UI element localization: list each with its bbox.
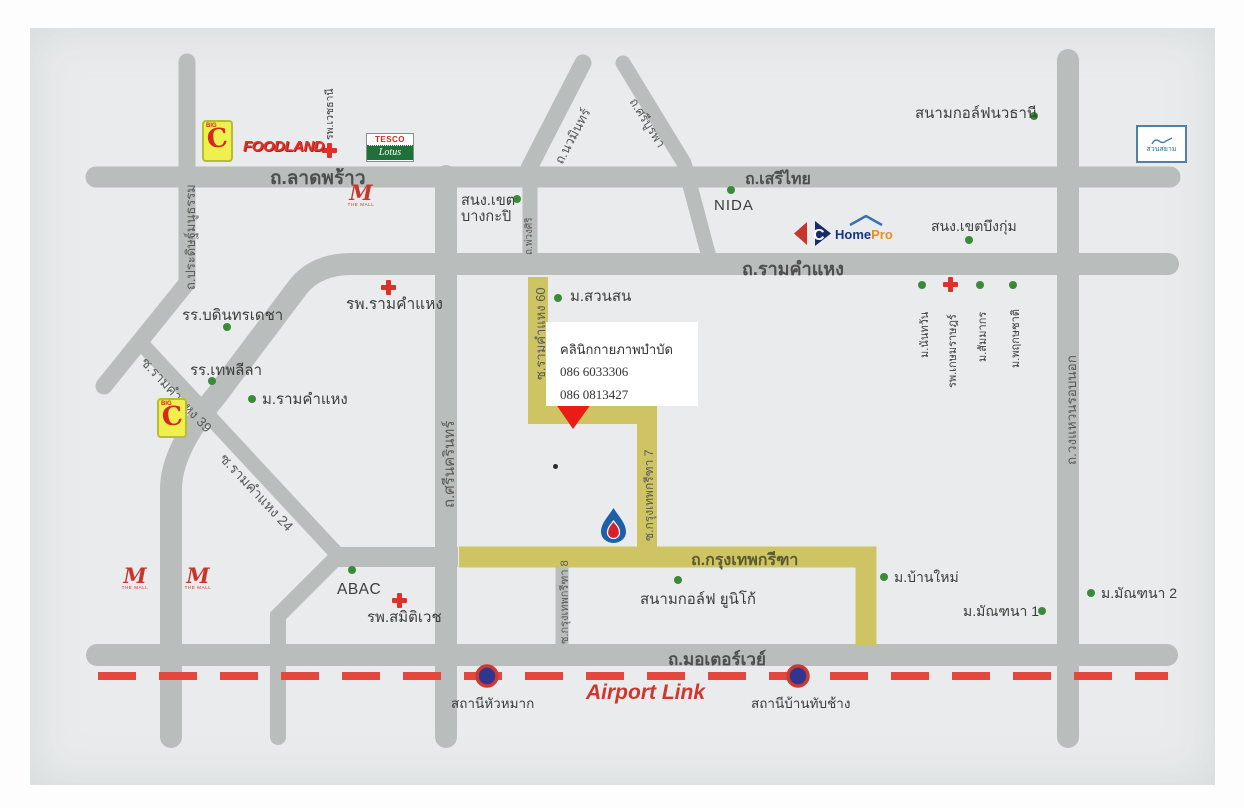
poi-label-ramkhamhaeng-hospital: รพ.รามคำแหง	[346, 296, 443, 313]
poi-label-unico-golf: สนามกอล์ฟ ยูนิโก้	[640, 592, 756, 609]
clinic-name: คลินิกกายภาพบำบัด	[560, 339, 673, 360]
road-label-srinakarin: ถ.ศรีนครินทร์	[437, 421, 461, 508]
ptt-flame-icon	[600, 507, 627, 544]
poi-label-ban-mai: ม.บ้านใหม่	[894, 570, 959, 585]
big-c-logo-letter: C	[160, 401, 184, 433]
suan-siam-logo: สวนสยาม	[1136, 125, 1187, 163]
station-ban-thap-chang-icon	[788, 666, 808, 686]
homepro-logo: HomePro	[835, 215, 905, 244]
road-label-soi-krungthep-kreetha-8: ซ.กรุงเทพกรีฑา 8	[555, 560, 573, 644]
tesco-lotus-logo: TESCO Lotus	[366, 133, 414, 162]
road-label-outer-ring: ถ.วงแหวนรอบนอก	[1060, 355, 1082, 465]
poi-label-nida: NIDA	[714, 198, 754, 215]
poi-dot-nida	[727, 186, 735, 194]
poi-label-nantawan: ม.นันทวัน	[915, 312, 933, 358]
wave-icon	[1151, 136, 1173, 146]
hospital-cross-samitivej	[392, 593, 407, 608]
road-label-soi-krungthep-kreetha-7: ซ.กรุงเทพกรีฑา 7	[640, 450, 659, 541]
poi-label-suan-son: ม.สวนสน	[570, 289, 631, 306]
poi-dot-ramkhamhaeng-university	[248, 395, 256, 403]
suan-siam-name: สวนสยาม	[1147, 146, 1177, 153]
the-mall-m: M	[120, 567, 150, 585]
clinic-phone-1: 086 6033306	[560, 364, 628, 380]
poi-label-vejthani-hospital: รพ.เวชธานี	[321, 88, 338, 140]
road-label-krungthep-kreetha: ถ.กรุงเทพกรีฑา	[691, 548, 798, 573]
hospital-cross-ramkhamhaeng	[381, 280, 396, 295]
poi-label-thepleela-school: รร.เทพลีลา	[190, 363, 262, 380]
airport-link-label: Airport Link	[586, 681, 705, 705]
poi-label-navatanee-golf: สนามกอล์ฟนวธานี	[915, 106, 1037, 123]
poi-label-samitivej-hospital: รพ.สมิติเวช	[367, 610, 442, 627]
poi-dot-manthana-2	[1087, 589, 1095, 597]
the-mall-logo: M THE MALL	[346, 184, 376, 207]
poi-label-bangkapi-line2: บางกะปิ	[461, 210, 515, 226]
road-label-motorway: ถ.มอเตอร์เวย์	[668, 646, 766, 673]
poi-label-bodindecha-school: รร.บดินทรเดชา	[182, 308, 283, 325]
ptt-logo	[600, 507, 627, 549]
poi-label-bangkapi-line1: สนง.เขต	[461, 194, 515, 210]
station-label-hua-mak: สถานีหัวหมาก	[451, 692, 534, 714]
poi-label-phruksachat: ม.พฤกษชาติ	[1006, 309, 1024, 368]
poi-label-manthana-1: ม.มัณฑนา 1	[963, 604, 1039, 619]
road-sri-burapha	[623, 63, 709, 257]
poi-label-buengkum-office: สนง.เขตบึงกุ่ม	[931, 219, 1017, 234]
the-mall-logo-3: M THE MALL	[183, 567, 213, 590]
poi-dot-unico-golf	[674, 576, 682, 584]
poi-label-ramkhamhaeng-university: ม.รามคำแหง	[262, 392, 348, 409]
station-hua-mak-icon	[477, 666, 497, 686]
tesco-logo-text: TESCO	[367, 134, 413, 146]
lotus-logo-text: Lotus	[367, 146, 413, 160]
big-c-logo-2: BIG C	[157, 398, 187, 438]
clinic-phone-2: 086 0813427	[560, 387, 628, 403]
hospital-cross-kasemrad	[943, 277, 958, 292]
poi-dot-nantawan	[918, 281, 926, 289]
road-label-pradit-manutham: ถ.ประดิษฐ์มนูธรรม	[180, 184, 201, 290]
station-label-ban-thap-chang: สถานีบ้านทับช้าง	[751, 692, 850, 714]
map-canvas: ถ.ลาดพร้าว ถ.เสรีไทย ถ.รามคำแหง ถ.มอเตอร…	[0, 0, 1244, 808]
route-soi-60-to-kreetha-7	[538, 277, 647, 552]
poi-label-abac: ABAC	[337, 581, 381, 598]
poi-dot	[553, 464, 558, 469]
the-mall-caption: THE MALL	[120, 585, 150, 590]
the-mall-caption: THE MALL	[183, 585, 213, 590]
the-mall-caption: THE MALL	[346, 202, 376, 207]
poi-dot-manthana-1	[1038, 607, 1046, 615]
road-label-serithai: ถ.เสรีไทย	[745, 167, 811, 192]
the-mall-m: M	[183, 567, 213, 585]
homepro-pro-text: Pro	[871, 227, 893, 242]
big-c-logo-letter: C	[205, 123, 229, 155]
poi-dot-sammakorn	[976, 281, 984, 289]
homepro-home-text: Home	[835, 227, 871, 242]
poi-dot-buengkum-office	[965, 236, 973, 244]
hospital-cross-vejthani	[322, 143, 337, 158]
carrefour-letter: C	[813, 227, 825, 244]
poi-label-kasemrad: รพ.เกษมราษฎร์	[943, 314, 961, 388]
poi-label-bangkapi-office: สนง.เขต บางกะปิ	[461, 194, 515, 226]
road-label-phuang-siri: ถ.พ่วงศิริ	[522, 217, 537, 255]
poi-dot-ban-mai	[880, 573, 888, 581]
the-mall-logo-2: M THE MALL	[120, 567, 150, 590]
foodland-logo: FOODLAND	[243, 138, 324, 155]
poi-dot-phruksachat	[1009, 281, 1017, 289]
big-c-logo: BIG C	[202, 120, 233, 162]
poi-label-manthana-2: ม.มัณฑนา 2	[1101, 586, 1177, 601]
carrefour-icon: C	[792, 220, 832, 247]
the-mall-m: M	[346, 184, 376, 202]
poi-dot-abac	[348, 566, 356, 574]
poi-label-sammakorn: ม.สัมมากร	[973, 312, 991, 362]
poi-dot-suan-son	[554, 294, 562, 302]
homepro-roof-icon	[849, 215, 883, 226]
road-label-ramkhamhaeng: ถ.รามคำแหง	[742, 254, 844, 283]
carrefour-logo: C	[792, 220, 832, 252]
